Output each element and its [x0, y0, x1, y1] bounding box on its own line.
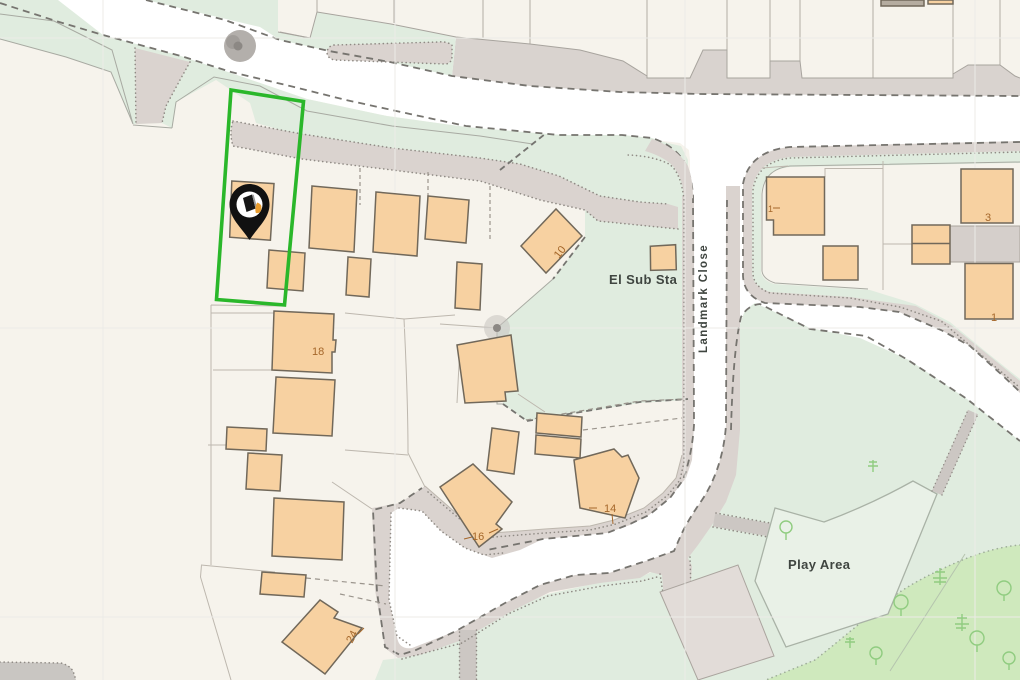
svg-text:14: 14	[604, 503, 616, 515]
svg-text:El Sub Sta: El Sub Sta	[609, 272, 678, 287]
svg-text:1: 1	[991, 312, 997, 324]
svg-text:18: 18	[312, 346, 324, 358]
svg-text:Landmark Close: Landmark Close	[698, 244, 710, 353]
svg-text:1: 1	[768, 204, 773, 214]
svg-text:16: 16	[472, 531, 484, 543]
svg-text:3: 3	[985, 212, 991, 224]
svg-text:Play Area: Play Area	[788, 557, 851, 572]
